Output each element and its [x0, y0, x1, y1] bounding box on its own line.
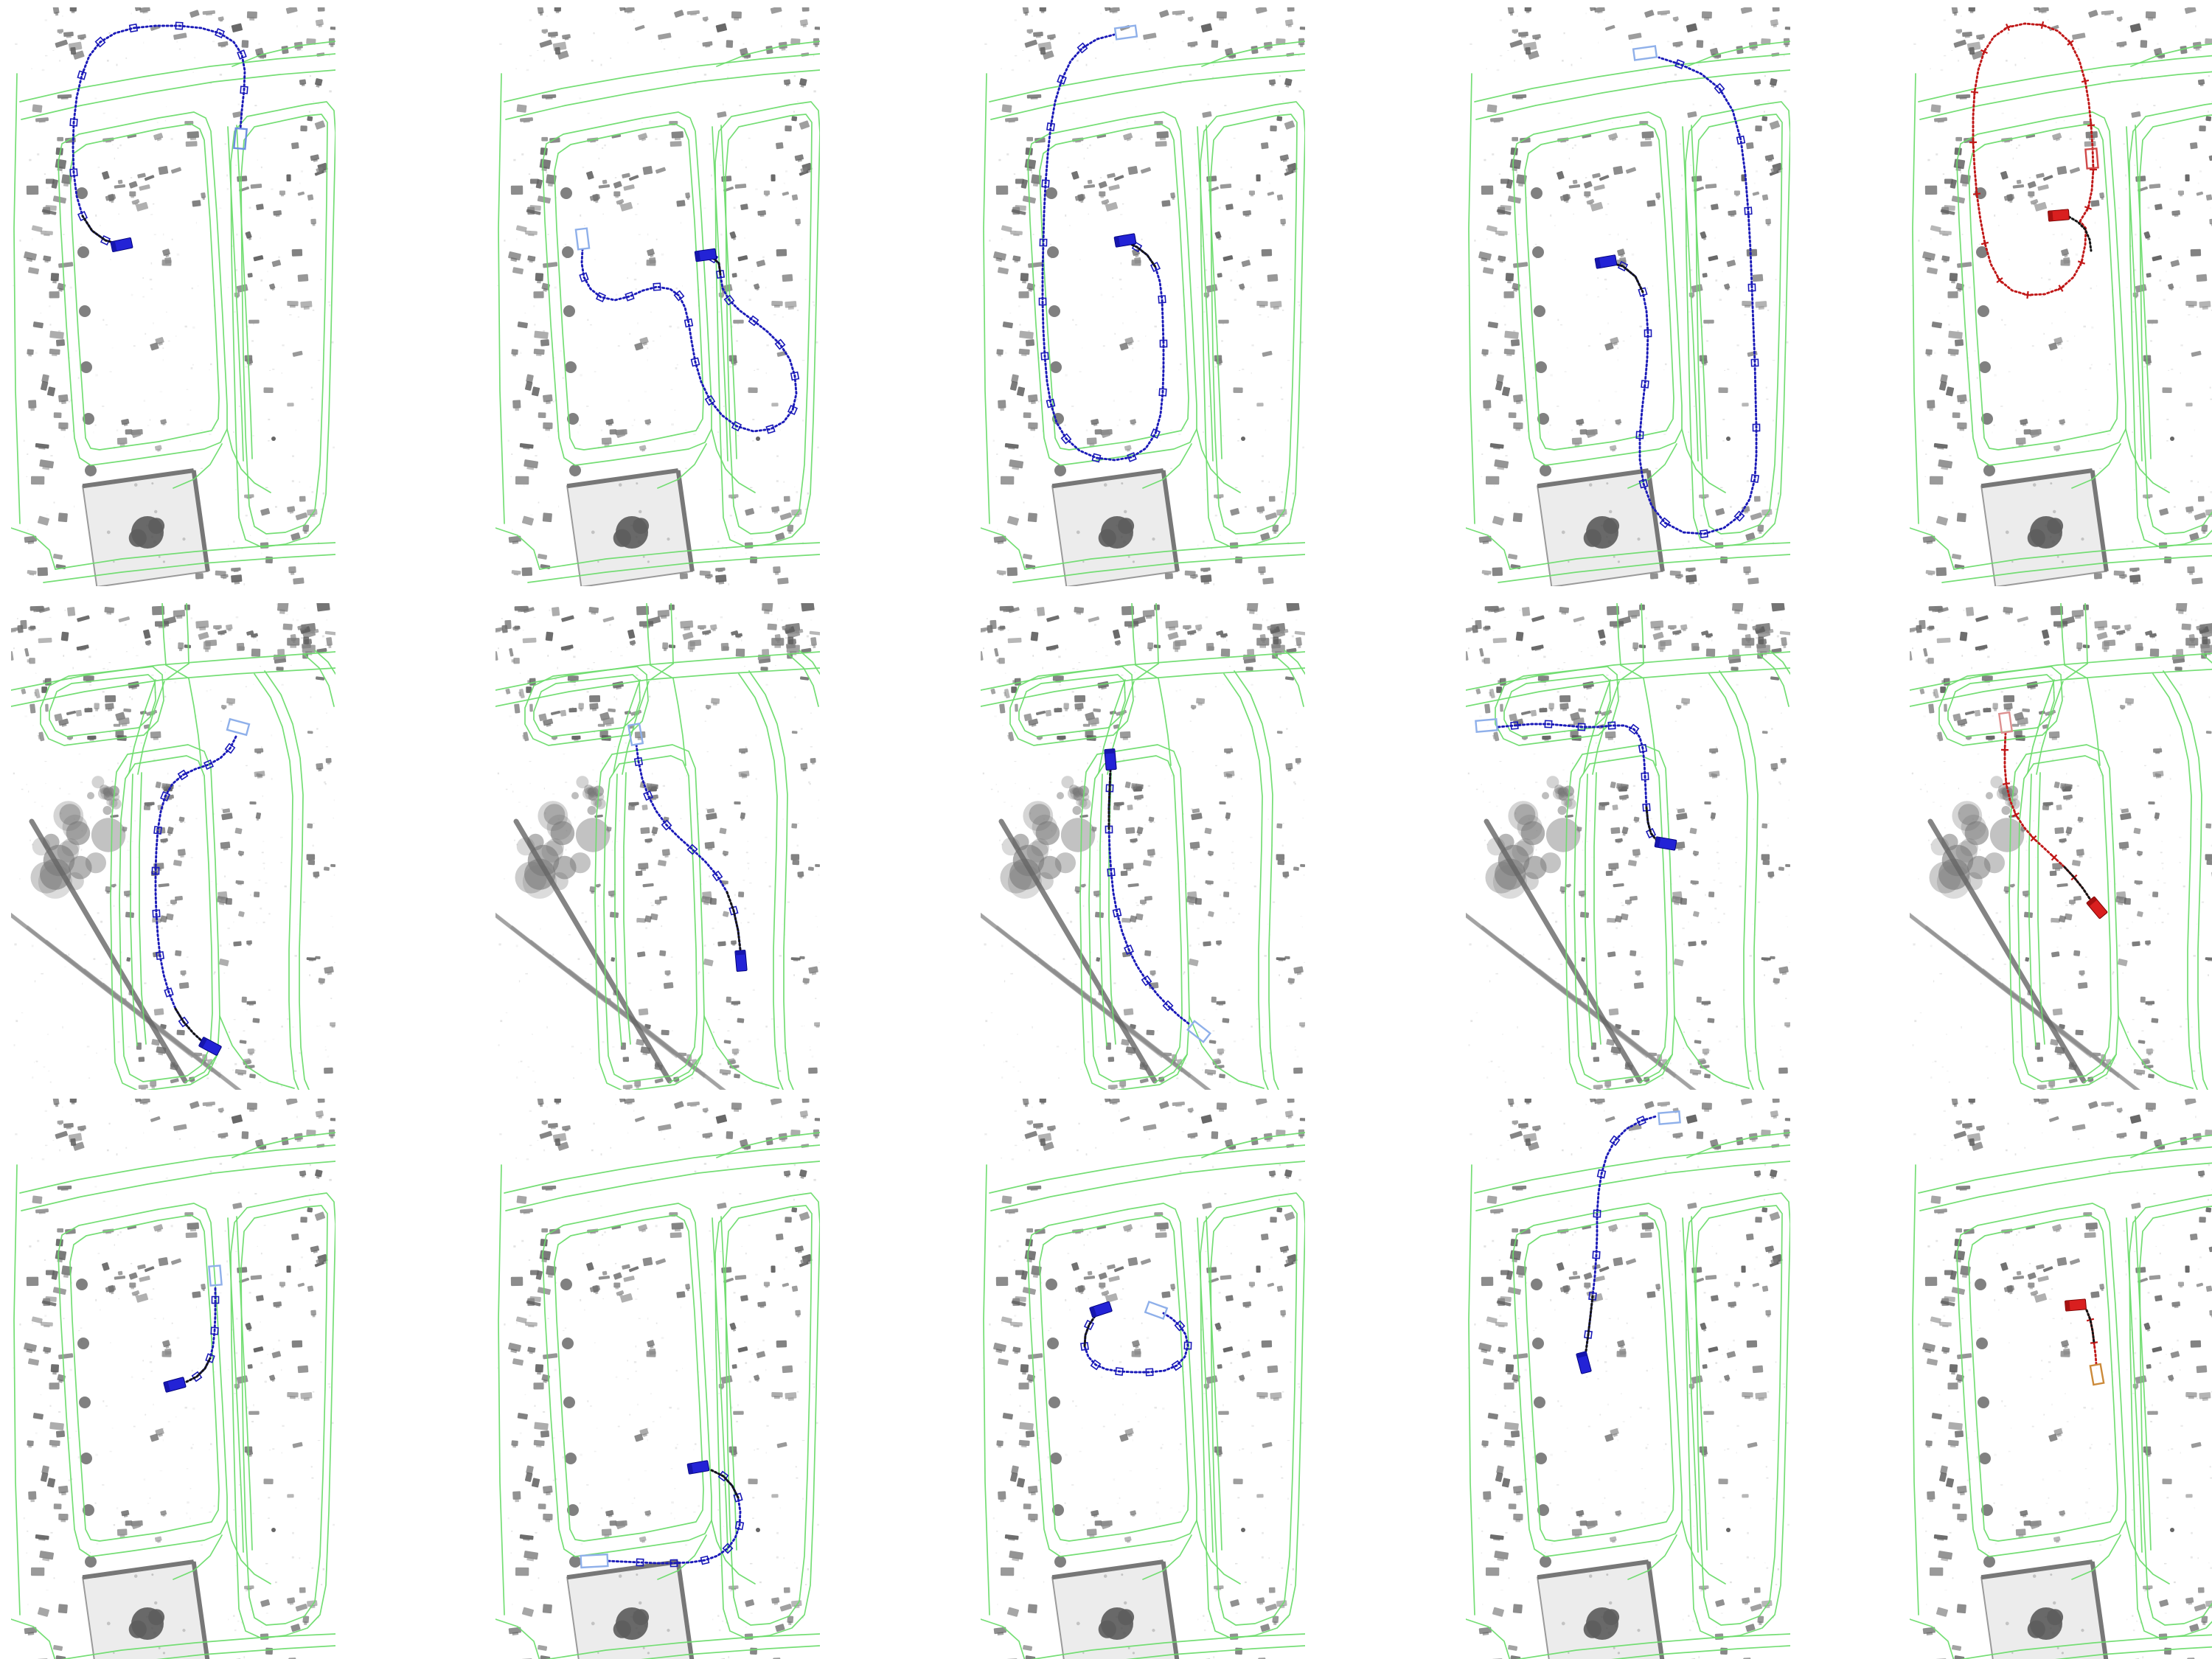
map-canvas-r1c1	[11, 7, 335, 586]
map-canvas-r3c5	[1910, 1099, 2212, 1659]
trajectory-panel-r2c1	[11, 603, 335, 1090]
map-canvas-r2c2	[495, 603, 820, 1090]
map-canvas-r1c2	[495, 7, 820, 586]
trajectory-panel-r1c4	[1466, 7, 1790, 586]
trajectory-panel-r1c2	[495, 7, 820, 586]
trajectory-panel-r2c3	[981, 603, 1305, 1090]
trajectory-panel-r3c3	[981, 1099, 1305, 1659]
map-canvas-r2c5	[1910, 603, 2212, 1090]
map-canvas-r2c4	[1466, 603, 1790, 1090]
trajectory-panel-r2c4	[1466, 603, 1790, 1090]
trajectory-panel-r3c2	[495, 1099, 820, 1659]
map-canvas-r2c3	[981, 603, 1305, 1090]
trajectory-panel-r1c5	[1910, 7, 2212, 586]
trajectory-panel-r3c5	[1910, 1099, 2212, 1659]
map-canvas-r3c2	[495, 1099, 820, 1659]
map-canvas-r3c4	[1466, 1099, 1790, 1659]
figure-page: { "figure": { "kind": "trajectory-map-gr…	[0, 0, 2212, 1659]
trajectory-figure-grid	[0, 0, 2212, 1659]
trajectory-panel-r2c2	[495, 603, 820, 1090]
trajectory-panel-r1c1	[11, 7, 335, 586]
trajectory-panel-r2c5	[1910, 603, 2212, 1090]
map-canvas-r1c5	[1910, 7, 2212, 586]
trajectory-panel-r3c1	[11, 1099, 335, 1659]
map-canvas-r1c4	[1466, 7, 1790, 586]
trajectory-panel-r3c4	[1466, 1099, 1790, 1659]
map-canvas-r3c3	[981, 1099, 1305, 1659]
map-canvas-r3c1	[11, 1099, 335, 1659]
trajectory-panel-r1c3	[981, 7, 1305, 586]
map-canvas-r2c1	[11, 603, 335, 1090]
map-canvas-r1c3	[981, 7, 1305, 586]
